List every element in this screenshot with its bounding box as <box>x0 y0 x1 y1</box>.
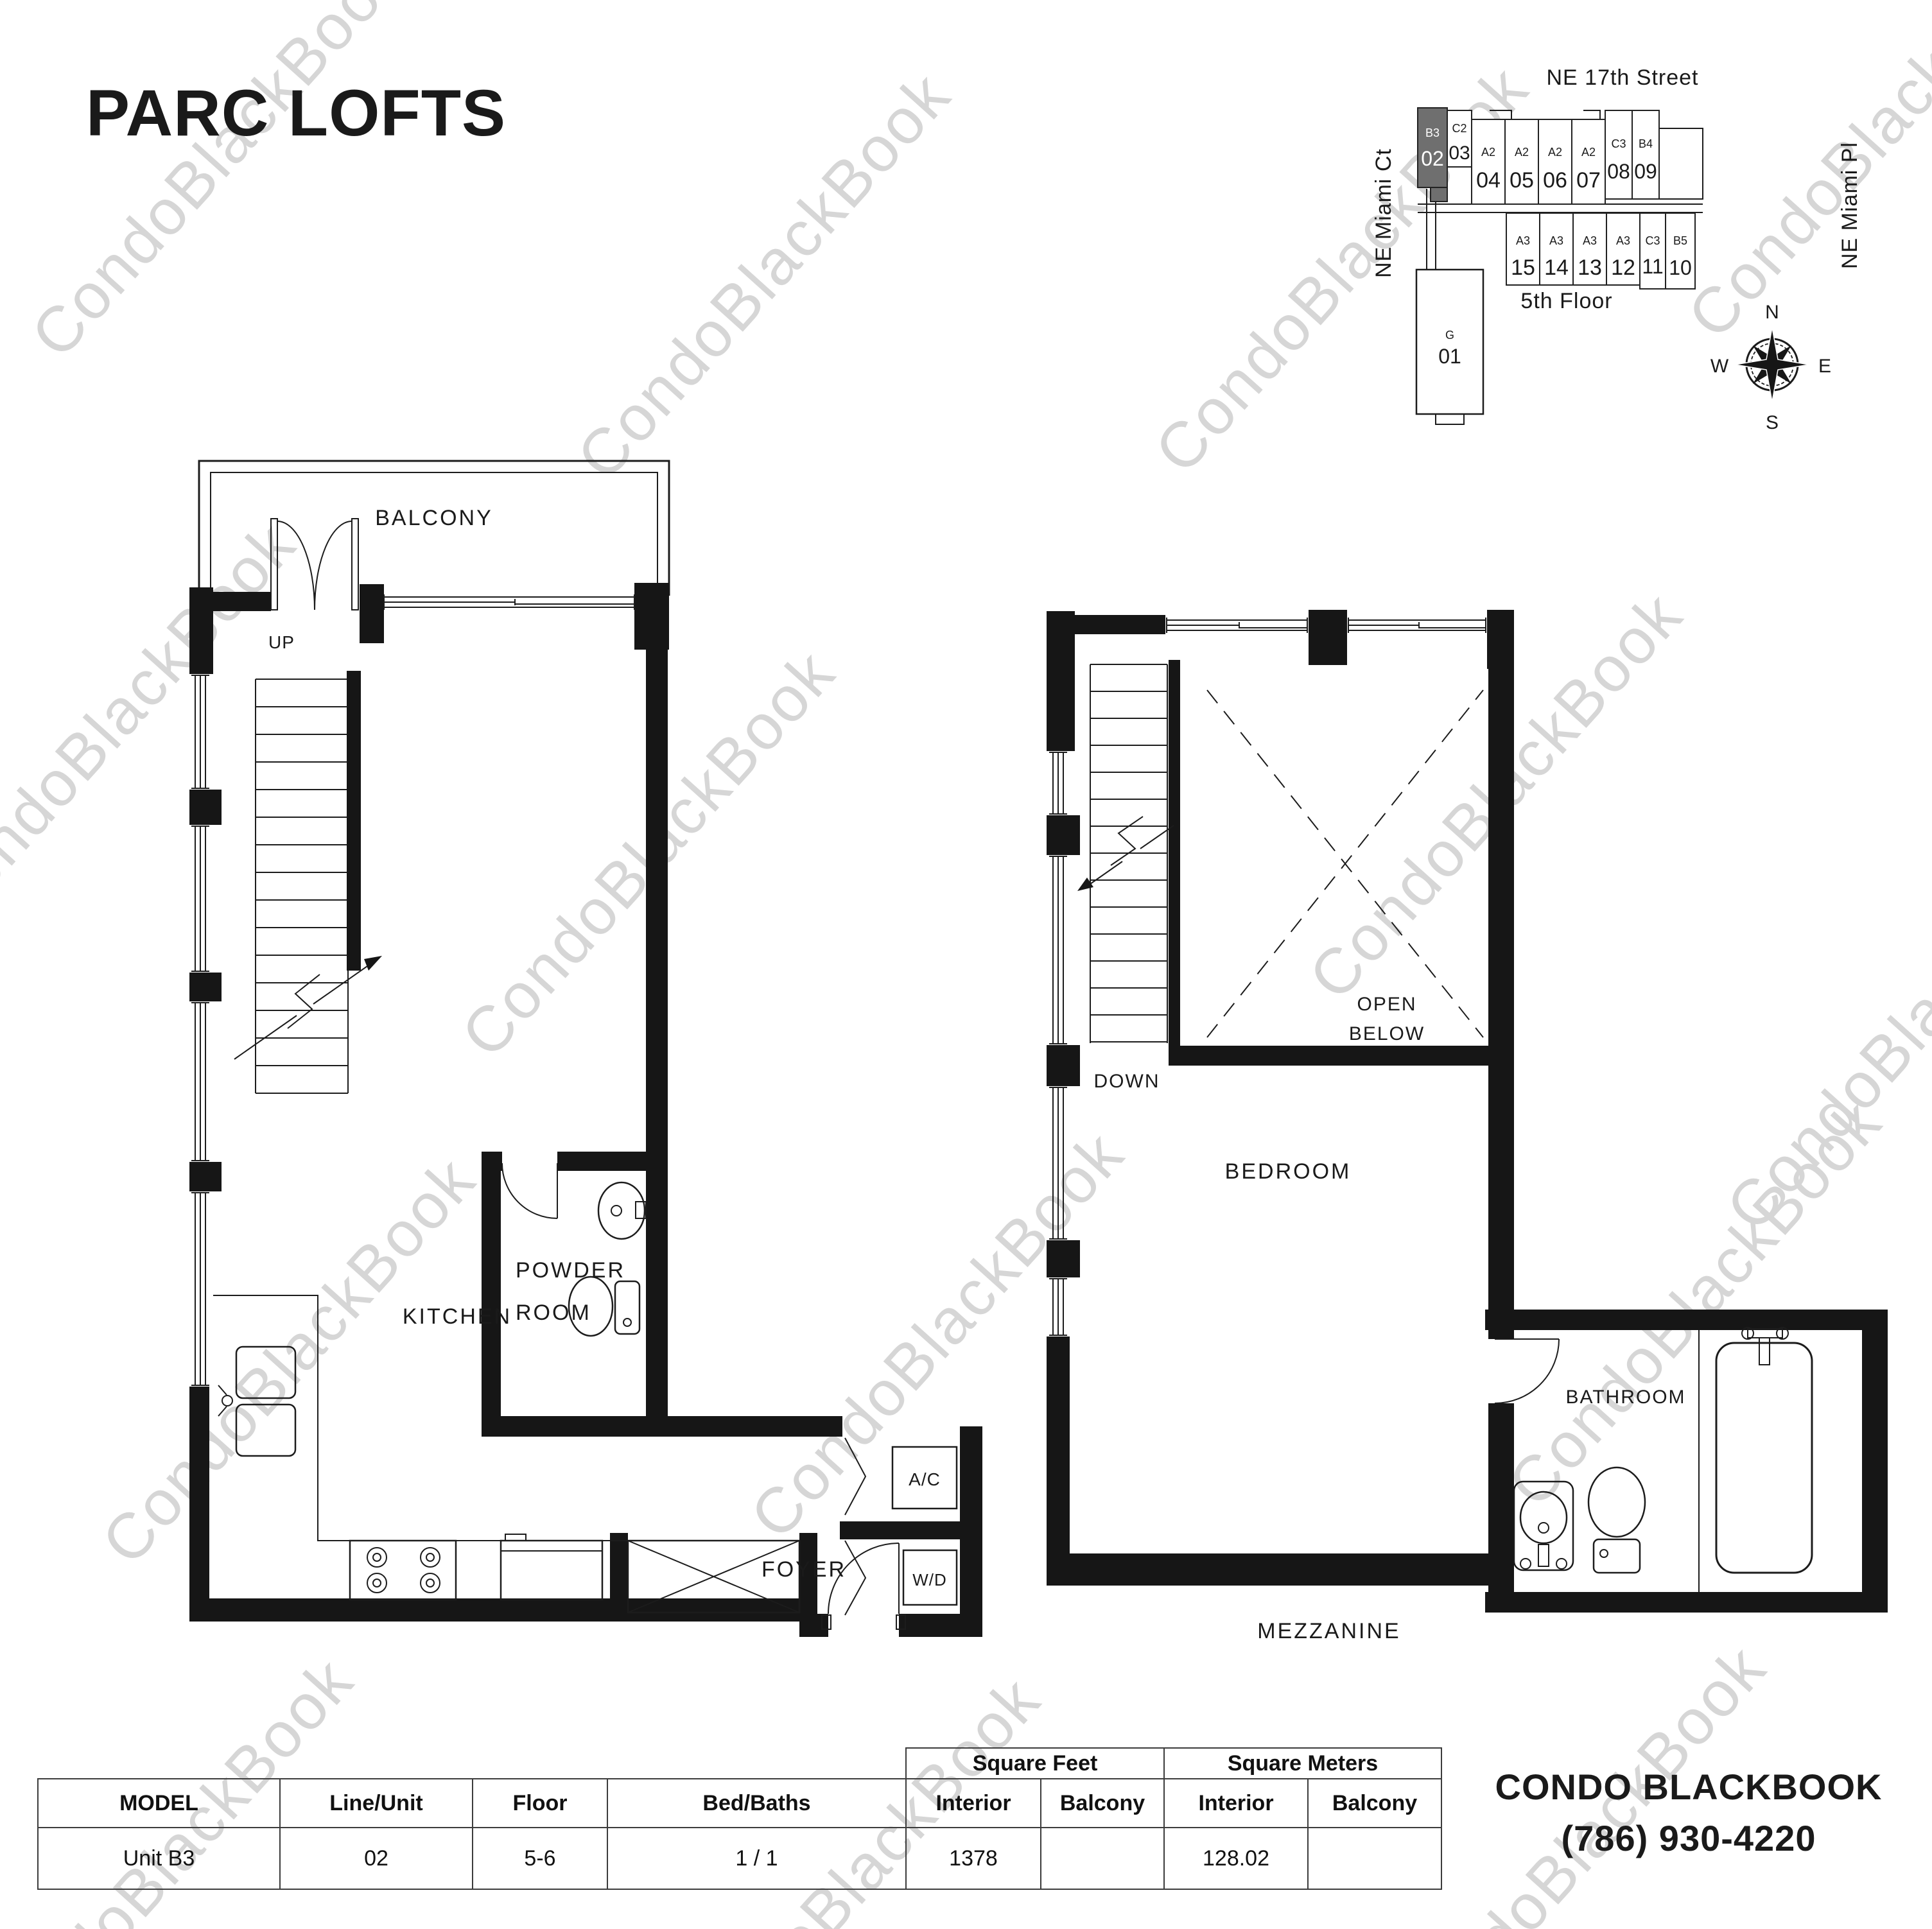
svg-text:06: 06 <box>1543 168 1567 193</box>
svg-text:A2: A2 <box>1481 146 1495 159</box>
svg-text:11: 11 <box>1642 255 1663 278</box>
brand-phone: (786) 930-4220 <box>1464 1813 1913 1864</box>
up-label: UP <box>268 632 295 652</box>
col-header-bed-baths: Bed/Baths <box>607 1779 906 1828</box>
powder-room: POWDER ROOM <box>502 1163 646 1336</box>
svg-text:02: 02 <box>1421 147 1444 170</box>
powder-room-label-1: POWDER <box>516 1258 625 1283</box>
keyplan-ground-tower <box>1416 270 1483 414</box>
top-window <box>384 594 634 610</box>
balcony-label: BALCONY <box>375 506 493 530</box>
bedroom-label: BEDROOM <box>1225 1159 1352 1184</box>
lower-plan-walls <box>189 583 982 1637</box>
compass-east-label: E <box>1818 356 1831 377</box>
compass-south-label: S <box>1766 412 1779 433</box>
keyplan-unit-11: C3 11 <box>1640 213 1666 289</box>
svg-text:04: 04 <box>1476 168 1501 193</box>
svg-text:15: 15 <box>1511 255 1535 280</box>
col-header-sqft-balcony: Balcony <box>1041 1779 1164 1828</box>
mezzanine-label: MEZZANINE <box>1257 1619 1400 1643</box>
svg-text:12: 12 <box>1611 255 1635 280</box>
svg-text:14: 14 <box>1544 255 1569 280</box>
table-row: Unit B3 02 5-6 1 / 1 1378 128.02 <box>38 1828 1441 1889</box>
svg-text:C3: C3 <box>1611 137 1626 150</box>
svg-text:C3: C3 <box>1645 234 1660 247</box>
toilet-icon <box>1588 1467 1645 1537</box>
svg-text:10: 10 <box>1669 256 1692 279</box>
keyplan-unit-15: A3 15 <box>1506 213 1540 285</box>
keyplan-unit-01: G 01 <box>1438 329 1461 368</box>
bathroom-label: BATHROOM <box>1565 1387 1685 1408</box>
keyplan-right-wing <box>1659 128 1703 199</box>
bathroom-sink-icon <box>1514 1482 1573 1570</box>
cell-sqm-interior: 128.02 <box>1164 1828 1308 1889</box>
svg-text:A2: A2 <box>1548 146 1562 159</box>
keyplan-unit-06: A2 06 <box>1538 119 1572 204</box>
svg-text:B3: B3 <box>1425 126 1440 139</box>
keyplan-unit-08: C3 08 <box>1605 110 1632 199</box>
col-header-floor: Floor <box>473 1779 607 1828</box>
svg-text:B4: B4 <box>1639 137 1653 150</box>
cell-sqm-balcony <box>1308 1828 1441 1889</box>
cell-sqft-balcony <box>1041 1828 1164 1889</box>
dishwasher-icon <box>501 1541 602 1600</box>
keyplan-unit-10: B5 10 <box>1666 213 1695 289</box>
footer-brand-block: CONDO BLACKBOOK (786) 930-4220 <box>1464 1761 1913 1864</box>
cell-floor: 5-6 <box>473 1828 607 1889</box>
brand-name: CONDO BLACKBOOK <box>1464 1761 1913 1813</box>
keyplan-corridor <box>1418 204 1703 212</box>
bathroom-door-arc <box>1495 1339 1559 1403</box>
svg-text:A2: A2 <box>1515 146 1529 159</box>
compass-west-label: W <box>1710 356 1729 377</box>
keyplan-unit-05: A2 05 <box>1505 119 1538 204</box>
floor-label: 5th Floor <box>1520 289 1612 313</box>
kitchen-label: KITCHEN <box>403 1304 512 1329</box>
bathroom: BATHROOM <box>1495 1328 1812 1592</box>
keyplan-unit-03: C2 03 <box>1447 110 1472 167</box>
compass-rose-icon: N E S W <box>1710 302 1831 433</box>
open-below-area: OPEN BELOW <box>1207 690 1483 1044</box>
group-header-sqm: Square Meters <box>1164 1748 1441 1779</box>
kitchen: KITCHEN <box>213 1295 799 1613</box>
keyplan-unit-14: A3 14 <box>1540 213 1573 285</box>
floorplan-page: CondoBlackBookCondoBlackBookCondoBlackBo… <box>0 0 1932 1929</box>
powder-room-label-2: ROOM <box>516 1301 591 1325</box>
stove-icon <box>350 1541 456 1600</box>
svg-text:A3: A3 <box>1583 234 1597 247</box>
svg-text:07: 07 <box>1576 168 1601 193</box>
left-windows <box>191 675 209 1385</box>
svg-text:G: G <box>1445 329 1454 342</box>
cell-sqft-interior: 1378 <box>906 1828 1041 1889</box>
bathtub-icon <box>1716 1343 1812 1573</box>
svg-text:01: 01 <box>1438 345 1461 368</box>
down-label: DOWN <box>1094 1071 1160 1092</box>
wd-label: W/D <box>912 1570 947 1589</box>
keyplan-unit-07: A2 07 <box>1572 119 1605 204</box>
open-below-label-1: OPEN <box>1357 994 1416 1015</box>
foyer-label: FOYER <box>761 1557 846 1582</box>
stairs-up: UP <box>234 632 382 1093</box>
keyplan-unit-12: A3 12 <box>1606 213 1640 285</box>
compass-north-label: N <box>1765 302 1779 323</box>
balcony-french-doors <box>271 519 358 610</box>
open-below-label-2: BELOW <box>1349 1023 1425 1044</box>
wd-bifold-door <box>845 1541 866 1615</box>
svg-text:B5: B5 <box>1673 234 1687 247</box>
lower-floor-plan: BALCONY <box>189 461 982 1637</box>
svg-text:A2: A2 <box>1581 146 1596 159</box>
cell-line-unit: 02 <box>280 1828 473 1889</box>
keyplan-unit-04: A2 04 <box>1472 119 1505 204</box>
svg-text:A3: A3 <box>1516 234 1530 247</box>
keyplan-balcony-bumps <box>1490 110 1600 119</box>
floorplan-drawing: NE 17th Street NE Miami Ct NE Miami Pl B… <box>0 0 1932 1929</box>
svg-text:08: 08 <box>1607 160 1630 183</box>
ac-bifold-door <box>845 1438 866 1515</box>
cell-bed-baths: 1 / 1 <box>607 1828 906 1889</box>
upper-plan-walls <box>1047 610 1888 1613</box>
svg-text:C2: C2 <box>1452 122 1466 135</box>
col-header-sqft-interior: Interior <box>906 1779 1041 1828</box>
col-header-sqm-interior: Interior <box>1164 1779 1308 1828</box>
cell-model: Unit B3 <box>38 1828 280 1889</box>
stairs-down: DOWN <box>1077 664 1174 1092</box>
col-header-model: MODEL <box>38 1779 280 1828</box>
col-header-line-unit: Line/Unit <box>280 1779 473 1828</box>
keyplan-unit-13: A3 13 <box>1573 213 1606 285</box>
key-plan: NE 17th Street NE Miami Ct NE Miami Pl B… <box>1371 65 1862 433</box>
svg-text:03: 03 <box>1449 143 1470 164</box>
svg-text:13: 13 <box>1578 255 1602 280</box>
keyplan-unit-02: B3 02 <box>1418 108 1447 202</box>
kitchen-sink-icon <box>236 1347 295 1398</box>
keyplan-unit-09: B4 09 <box>1632 110 1659 199</box>
keyplan-tower-notch <box>1436 414 1464 424</box>
upper-floor-plan: DOWN OPEN BELOW BEDROOM <box>1047 610 1888 1643</box>
street-top-label: NE 17th Street <box>1546 65 1698 90</box>
street-right-label: NE Miami Pl <box>1838 142 1862 269</box>
svg-text:A3: A3 <box>1549 234 1563 247</box>
svg-text:05: 05 <box>1510 168 1534 193</box>
spec-table: Square Feet Square Meters MODEL Line/Uni… <box>37 1747 1442 1890</box>
ac-label: A/C <box>909 1469 941 1489</box>
svg-text:09: 09 <box>1634 160 1657 183</box>
svg-text:A3: A3 <box>1616 234 1630 247</box>
group-header-sqft: Square Feet <box>906 1748 1164 1779</box>
col-header-sqm-balcony: Balcony <box>1308 1779 1441 1828</box>
street-left-label: NE Miami Ct <box>1371 148 1396 278</box>
